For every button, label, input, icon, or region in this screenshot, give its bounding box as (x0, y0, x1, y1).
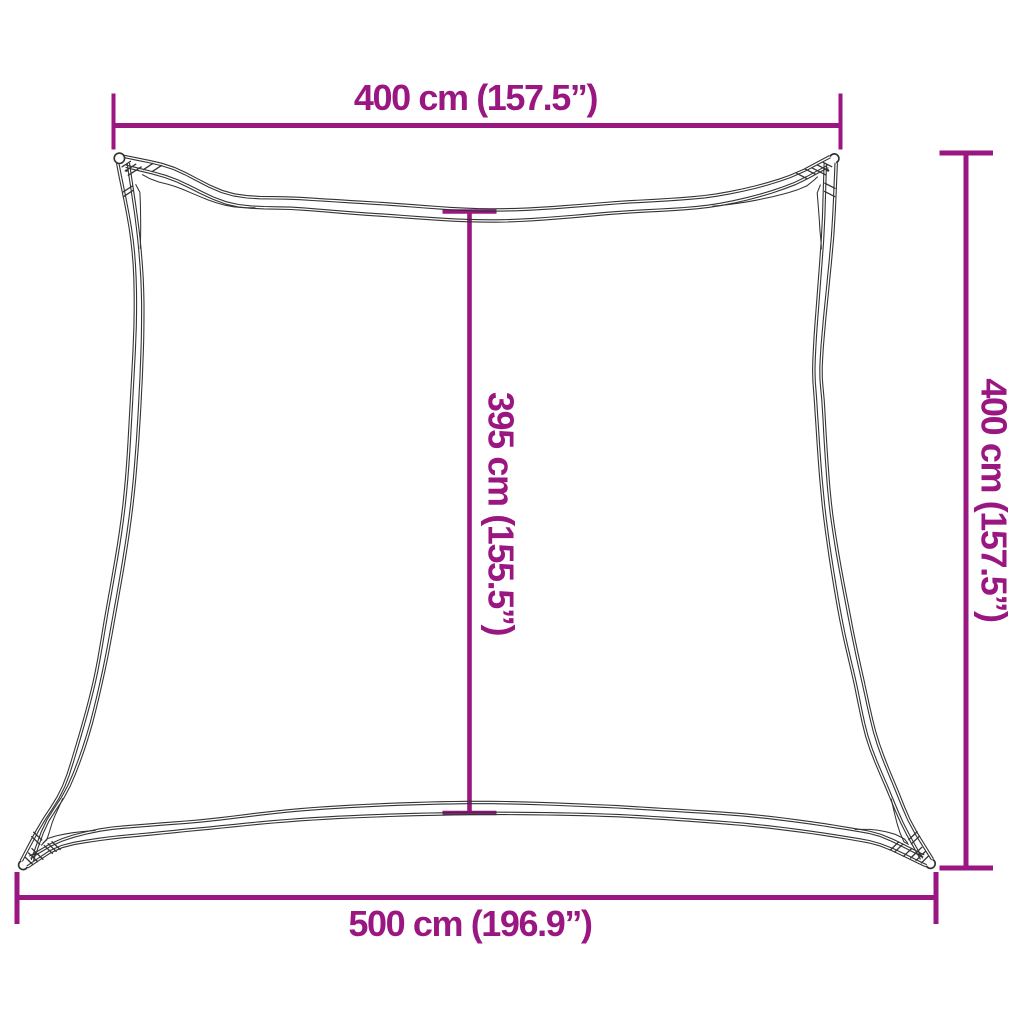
svg-text:500 cm (196.9”): 500 cm (196.9”) (348, 903, 592, 944)
svg-text:400 cm (157.5”): 400 cm (157.5”) (354, 77, 598, 118)
svg-text:400 cm (157.5”): 400 cm (157.5”) (974, 378, 1015, 622)
svg-text:395 cm (155.5”): 395 cm (155.5”) (481, 392, 522, 636)
